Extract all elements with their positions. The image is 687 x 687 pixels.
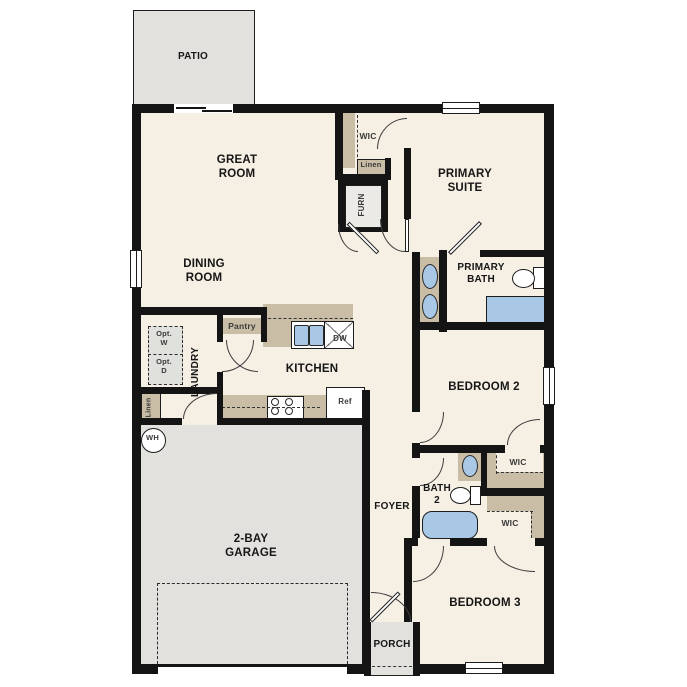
porch-label: PORCH [369, 639, 415, 651]
bedroom2-wic-label: WIC [504, 457, 532, 467]
bathtub [422, 511, 478, 539]
garage-door-outline [157, 583, 348, 664]
wall-exterior-left [132, 104, 141, 674]
burner-icon [271, 407, 279, 415]
optional-dryer-label: Opt. D [153, 358, 175, 376]
wall-hall-right [412, 252, 420, 412]
burner-icon [285, 407, 293, 415]
wall-garage-top [217, 418, 362, 425]
kitchen-label: KITCHEN [267, 363, 357, 377]
floor-plan: PATIO GREAT ROOM DINING ROOM WIC Linen F… [0, 0, 687, 687]
bedroom2-label: BEDROOM 2 [429, 381, 539, 395]
burner-icon [271, 398, 279, 406]
burner-icon [285, 398, 293, 406]
toilet-bowl [512, 269, 535, 288]
slider-panel [176, 107, 206, 109]
wall-bedroom3-top [404, 538, 418, 546]
wall-bedroom2-bottom [540, 445, 553, 453]
dishwasher-label: DW [329, 334, 351, 343]
primary-bath-label: PRIMARY BATH [453, 262, 509, 286]
closet-rod [496, 450, 497, 474]
wall-bath2-wic [481, 448, 487, 488]
pantry-label: Pantry [223, 321, 261, 331]
garage-door-opening [158, 665, 347, 674]
wall-primarybath-top [480, 250, 553, 257]
vanity-sink [422, 294, 438, 319]
closet-rod [531, 511, 532, 538]
bedroom3-wic-label: WIC [496, 518, 524, 528]
island-counter-edge [263, 318, 353, 319]
wall-bath-bedroom2 [412, 322, 553, 330]
foyer-label: FOYER [367, 501, 417, 513]
window [543, 367, 555, 405]
wall-garage-right [362, 390, 370, 664]
toilet-bowl [450, 487, 471, 504]
vanity-sink [422, 264, 438, 289]
primary-wic-label: WIC [354, 131, 382, 141]
bedroom3-label: BEDROOM 3 [430, 597, 540, 611]
great-room-label: GREAT ROOM [213, 154, 261, 181]
patio-slider-door [174, 104, 233, 113]
optional-washer-label: Opt. W [153, 330, 175, 348]
kitchen-sink [291, 321, 326, 349]
furnace-label: FURN [357, 185, 367, 225]
window [442, 102, 480, 114]
window [130, 250, 142, 288]
wall-bedroom3-top [450, 538, 487, 546]
wall-dining-laundry [132, 307, 267, 315]
sink-basin [294, 325, 309, 346]
bedroom3-wic-shelf [531, 511, 545, 538]
garage-label: 2-BAY GARAGE [220, 533, 282, 560]
wall-hall-primary [404, 148, 411, 219]
closet-rod [496, 472, 543, 473]
sink-basin [309, 325, 324, 346]
wall-pantry-right [261, 315, 267, 342]
porch-edge [372, 666, 412, 667]
wall-greatroom-wic [335, 113, 343, 179]
patio-label: PATIO [163, 51, 223, 63]
linen-hall-label: Linen [357, 161, 385, 170]
toilet-tank [470, 486, 481, 505]
water-heater-label: WH [141, 434, 164, 443]
wall-wic-divider [481, 488, 545, 496]
wall-laundry-right [217, 372, 223, 418]
linen-laundry-label: Linen [146, 394, 155, 422]
closet-rod [487, 511, 533, 512]
door-leaf [405, 219, 409, 252]
dining-room-label: DINING ROOM [179, 258, 229, 285]
wall-bedroom2-bottom [412, 445, 505, 453]
vanity-sink [462, 455, 478, 477]
shower [486, 296, 546, 323]
wall-linen-side [385, 158, 391, 178]
primary-suite-label: PRIMARY SUITE [433, 168, 497, 195]
bath2-label: BATH 2 [421, 483, 453, 507]
laundry-label: LAUNDRY [190, 332, 204, 412]
wall-bedroom3-top [535, 538, 553, 546]
refrigerator-label: Ref [327, 397, 363, 406]
window [465, 662, 503, 674]
wall-vanity-plumbing [439, 250, 447, 332]
counter-edge [222, 407, 320, 408]
slider-panel [202, 110, 232, 112]
bedroom3-wic-shelf [487, 496, 545, 511]
